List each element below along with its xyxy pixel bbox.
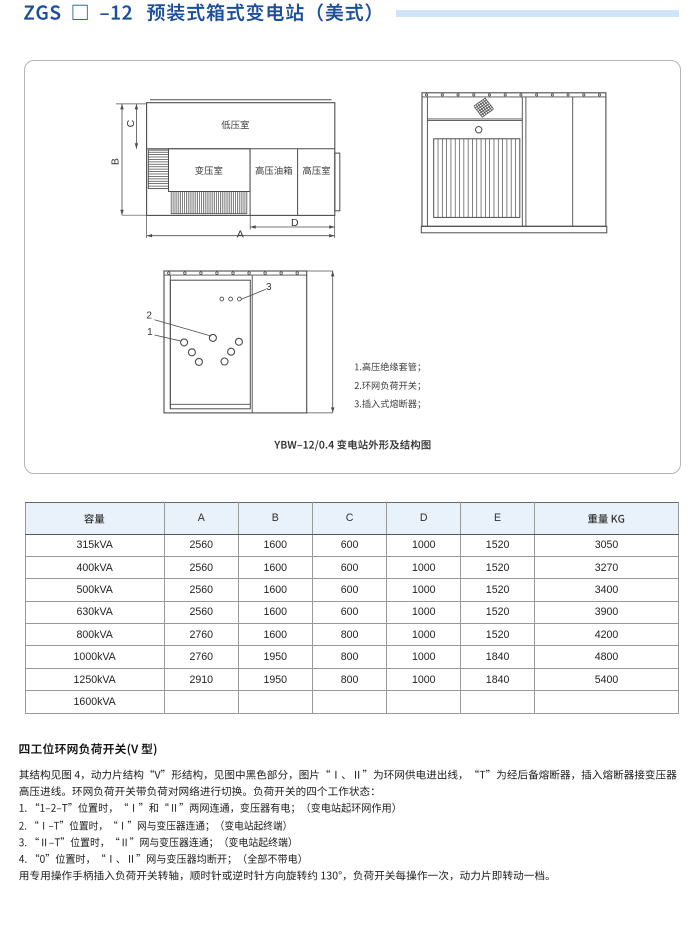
svg-text:B: B — [110, 158, 122, 165]
svg-text:1: 1 — [147, 327, 153, 338]
svg-text:2: 2 — [146, 310, 152, 321]
svg-text:3: 3 — [266, 282, 272, 293]
svg-text:A: A — [237, 228, 244, 240]
svg-text:C: C — [125, 119, 137, 127]
svg-text:D: D — [291, 217, 299, 229]
